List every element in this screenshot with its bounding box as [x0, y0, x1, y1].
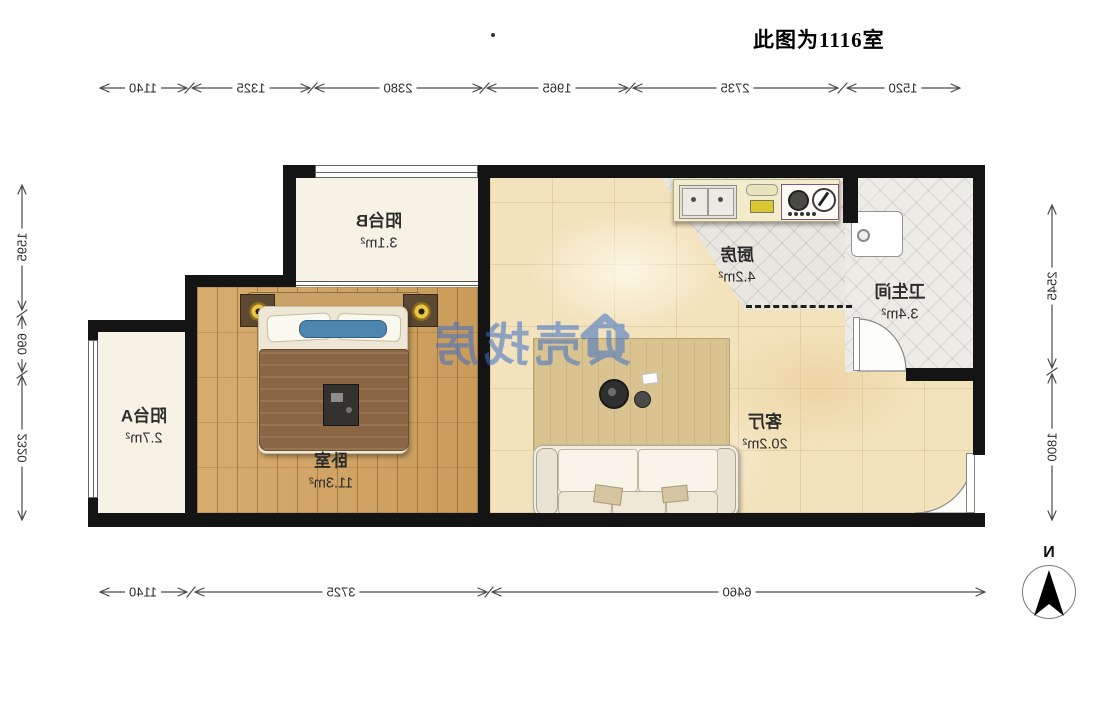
dim-left-3: 2320 [15, 430, 30, 467]
dim-top-1: 1140 [125, 81, 161, 96]
dimension-lines [0, 0, 1105, 710]
dim-left-2: 690 [15, 329, 30, 359]
dim-left-1: 1595 [15, 229, 30, 266]
dim-bottom-2: 3725 [323, 585, 360, 600]
dim-right-1: 2545 [1045, 268, 1060, 305]
dim-top-6: 1520 [885, 81, 922, 96]
dim-bottom-3: 6460 [719, 585, 756, 600]
dim-top-5: 2735 [717, 81, 754, 96]
dim-top-3: 2380 [380, 81, 417, 96]
dim-top-2: 1325 [233, 81, 270, 96]
dim-top-4: 1965 [539, 81, 576, 96]
floorplan-canvas: 此图为1116室 [0, 0, 1105, 710]
dim-bottom-1: 1140 [125, 585, 161, 600]
dim-right-2: 1800 [1045, 429, 1060, 466]
